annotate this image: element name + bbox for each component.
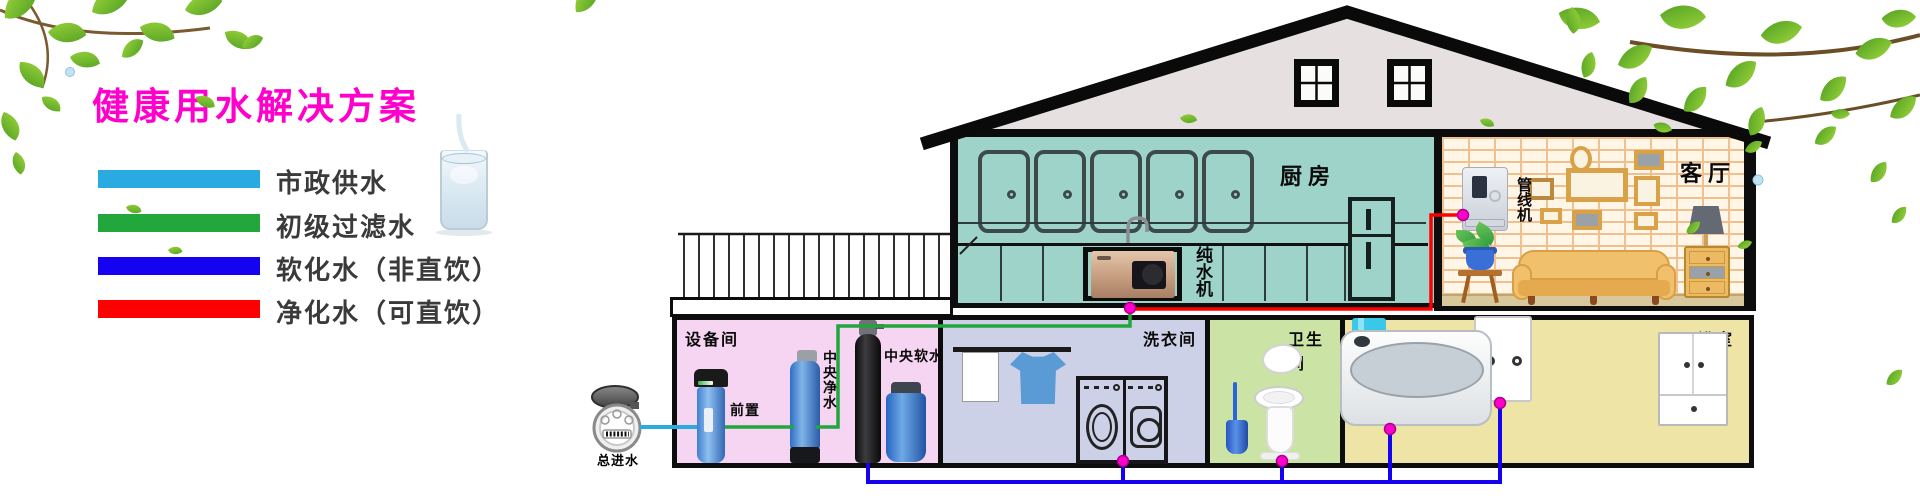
toilet-brush-handle <box>1233 382 1237 424</box>
legend-bar-filtered <box>98 214 260 232</box>
picture-frame-portrait <box>1634 176 1660 206</box>
kitchen-label: 厨房 <box>1280 159 1336 191</box>
toilet-seat-inner <box>1263 391 1295 404</box>
bathtub-faucet <box>1354 336 1370 347</box>
washer-controls-left <box>1084 386 1114 389</box>
washer-divider <box>1123 380 1126 460</box>
washer-dryer-icon <box>1076 376 1168 464</box>
water-pour-icon <box>459 114 468 152</box>
plant-pot-icon <box>1466 250 1494 270</box>
legend-bar-purified <box>98 300 260 318</box>
picture-frame <box>1540 208 1562 224</box>
equipment-room-roof <box>670 297 953 317</box>
legend-label-filtered: 初级过滤水 <box>276 207 416 244</box>
picture-frame <box>1634 150 1664 170</box>
kitchen-living-wall <box>1434 137 1442 309</box>
roof-line <box>928 12 1763 142</box>
washer-dial-left <box>1113 384 1120 391</box>
central-softener-label: 中央软水 <box>884 346 944 366</box>
pure-water-machine-icon <box>1091 251 1175 298</box>
cabinet-divider <box>1692 334 1694 394</box>
bath-cabinet-icon <box>1658 332 1728 426</box>
cabinet-knob <box>1063 190 1072 199</box>
cabinet-door <box>1090 150 1142 233</box>
kitchen-floor-line <box>950 303 1442 308</box>
cabinet-drawer-line <box>1660 394 1726 396</box>
central-softener-icon <box>855 334 881 463</box>
kitchen-left-wall <box>950 132 958 305</box>
pure-water-machine-label: 纯水机 <box>1190 246 1215 304</box>
cabinet-knob <box>1175 190 1184 199</box>
pipeline-machine-label: 管线机 <box>1513 177 1534 229</box>
room-kitchen: 厨房 纯水机 <box>950 137 1434 303</box>
softener-spout <box>875 324 884 329</box>
pipeline-machine-icon <box>1462 167 1508 231</box>
floor-lamp-icon <box>1688 206 1724 234</box>
toilet-pedestal <box>1266 406 1294 454</box>
pure-water-machine-door <box>1132 261 1166 289</box>
banner: 健康用水解决方案 市政供水 初级过滤水 软化水（非直饮） 净化水（可直饮） 设备… <box>0 0 1920 500</box>
washer-door-right <box>1130 406 1162 448</box>
fridge-icon <box>1348 197 1395 301</box>
legend-label-municipal: 市政供水 <box>276 163 388 200</box>
toilet-brush-icon <box>1226 420 1248 454</box>
prefilter-label: 前置 <box>730 400 760 420</box>
attic-gable <box>928 12 1763 142</box>
water-glass-shadow <box>436 229 492 236</box>
water-glass-rim <box>442 153 486 164</box>
legend-label-purified: 净化水（可直饮） <box>276 293 500 330</box>
cabinet-knob-right <box>1698 362 1704 368</box>
picture-frame <box>1634 212 1658 230</box>
equipment-room-label: 设备间 <box>685 326 739 350</box>
washer-door-left-inner <box>1092 412 1112 442</box>
shower-knob-right <box>1512 356 1522 366</box>
cabinet-door <box>1202 150 1254 233</box>
plant-stool <box>1458 270 1502 276</box>
prefilter-indicator <box>698 381 713 385</box>
legend-bar-softened <box>98 257 260 275</box>
cabinet-knob-left <box>1684 362 1690 368</box>
legend-label-softened: 软化水（非直饮） <box>276 250 500 287</box>
prefilter-sticker <box>704 408 713 432</box>
drawer-knob <box>1691 406 1697 412</box>
page-title: 健康用水解决方案 <box>92 76 420 130</box>
washer-controls-right <box>1128 386 1158 389</box>
sofa-seat <box>1518 280 1670 296</box>
sofa-icon <box>1518 250 1670 280</box>
central-purifier-label: 中央净水 <box>818 350 838 420</box>
cabinet-knob <box>1231 190 1240 199</box>
cabinet-door <box>978 150 1030 233</box>
laundry-room-label: 洗衣间 <box>1143 326 1197 350</box>
central-purifier-icon <box>790 361 820 449</box>
cabinet-knob <box>1119 190 1128 199</box>
cabinet-door <box>1146 150 1198 233</box>
bathtub-basin <box>1350 342 1484 398</box>
water-meter-icon <box>592 386 640 451</box>
bathtub-icon <box>1340 330 1492 426</box>
attic-window <box>1387 59 1432 107</box>
picture-frame-large <box>1566 168 1628 202</box>
living-floor-line <box>1434 306 1756 311</box>
fence <box>678 234 950 297</box>
central-purifier-base <box>790 447 820 463</box>
living-right-wall <box>1744 136 1756 310</box>
main-inlet-label: 总进水 <box>593 450 643 469</box>
toilet-base <box>1260 452 1300 460</box>
living-room-label: 客厅 <box>1680 156 1736 188</box>
brine-tank-icon <box>886 393 926 462</box>
washer-dial-right <box>1155 384 1162 391</box>
cabinet-door <box>1034 150 1086 233</box>
laundry-towel-icon <box>962 352 999 402</box>
attic-window <box>1294 59 1339 107</box>
picture-frame <box>1572 210 1602 230</box>
nightstand-icon <box>1684 246 1730 298</box>
cabinet-knob <box>1007 190 1016 199</box>
legend-bar-municipal <box>98 170 260 188</box>
picture-frame-oval <box>1570 146 1592 172</box>
